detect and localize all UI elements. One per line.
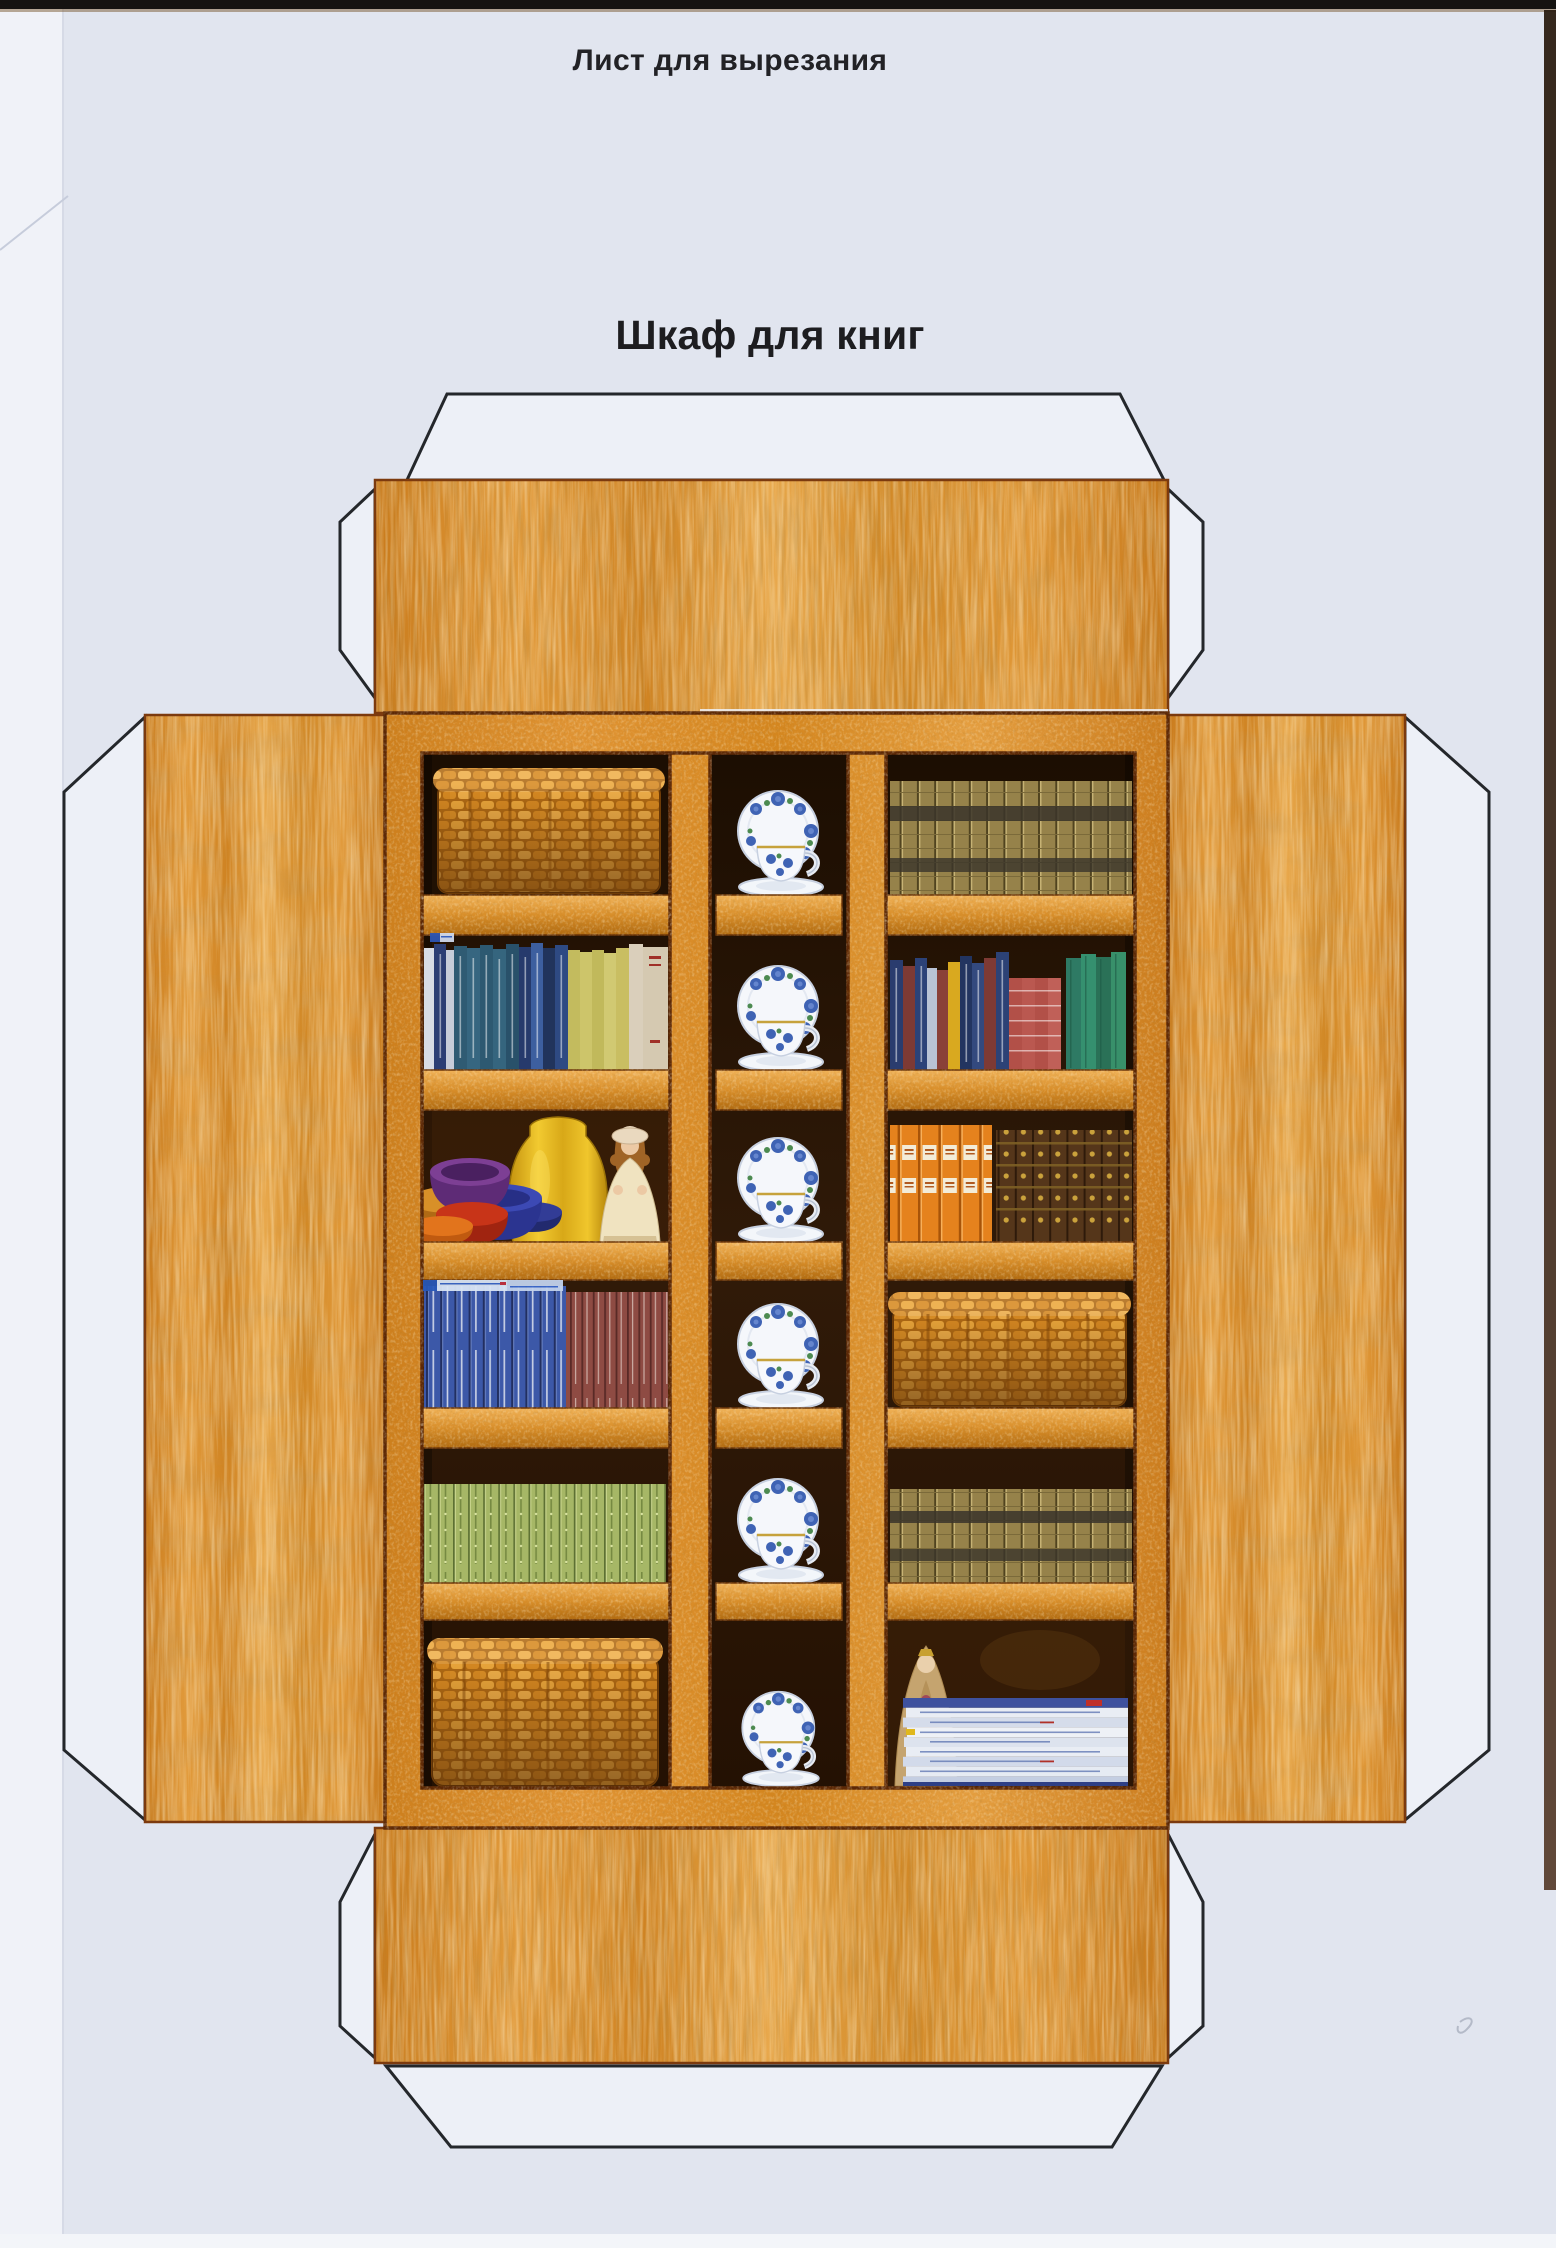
cutout-sheet-page: Лист для вырезания Шкаф для книг [0,0,1556,2248]
scan-edge-top [0,0,1556,9]
paper-edge-bottom [0,2234,1556,2248]
teacup [738,1304,823,1409]
top-flap [375,480,1168,713]
book-sets-left-row4 [424,1286,668,1408]
left-flap [145,715,385,1822]
scan-edge-right [1544,10,1556,1890]
bottom-glue-tab [386,2066,1162,2147]
green-book-set [424,1484,666,1583]
orange-and-ornate-sets [890,1125,1132,1242]
scan-artifact [423,1280,563,1291]
books-left-row2 [424,943,668,1070]
bookcase-panel [385,713,1168,1828]
olive-book-set-top [890,781,1132,895]
basket-left-top [433,768,665,893]
model-title: Шкаф для книг [0,312,1540,359]
bottom-flap [375,1828,1168,2063]
olive-book-set-bottom [890,1489,1132,1583]
teacup [738,1479,823,1584]
teacup [738,966,823,1071]
left-glue-tab [64,717,145,1820]
top-glue-tab [407,394,1164,480]
right-flap [1168,715,1405,1822]
teacup [738,1138,823,1243]
magazine-stack [903,1698,1128,1786]
books-right-row2 [890,952,1126,1070]
basket-left-bottom [427,1638,663,1786]
right-glue-tab [1405,717,1489,1820]
basket-right [888,1292,1131,1406]
scan-artifact [430,933,454,942]
teacup [742,1692,819,1787]
teacup [738,791,823,896]
page-title: Лист для вырезания [0,44,1460,78]
